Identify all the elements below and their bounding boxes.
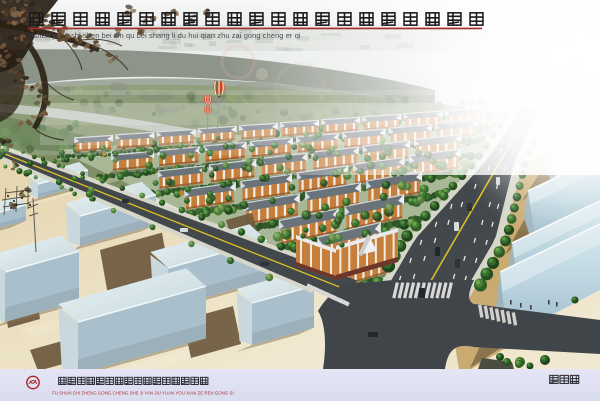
svg-text:-shen yang shi shen bei xin qu: -shen yang shi shen bei xin qu bei shang… (31, 31, 301, 40)
svg-text:FU SHUN SHI ZHENG GONG CHENG S: FU SHUN SHI ZHENG GONG CHENG SHE JI YAN … (52, 391, 234, 396)
